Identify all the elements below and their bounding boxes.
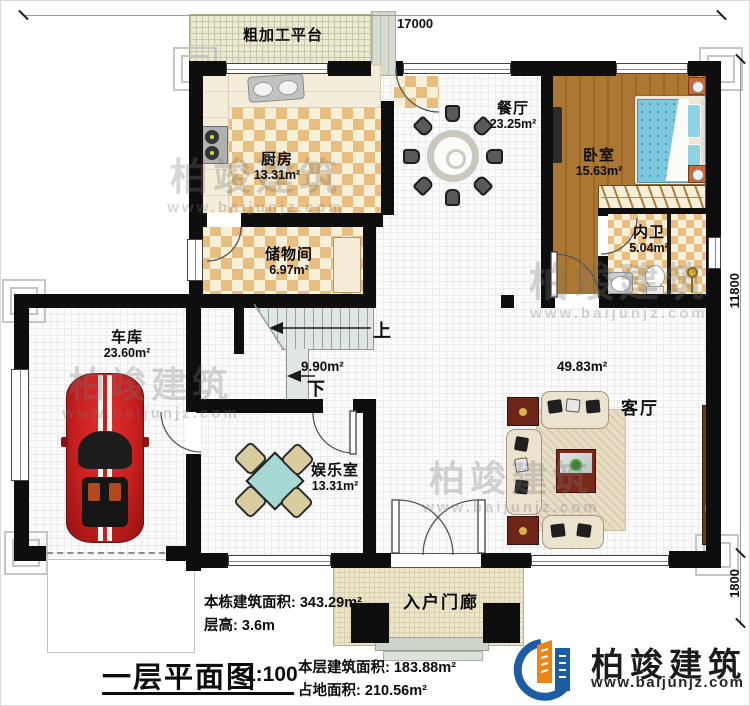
garage-label: 车库 23.60m² xyxy=(87,329,167,361)
living-area-label: 49.83m² xyxy=(557,359,607,375)
info-value: 183.88m² xyxy=(394,660,456,676)
room-area: 15.63m² xyxy=(559,164,639,178)
info-label: 占地面积: xyxy=(298,683,361,699)
room-name: 厨房 xyxy=(237,151,317,168)
info-label: 本栋建筑面积: xyxy=(204,595,296,611)
dimension-line-top xyxy=(23,15,723,16)
stair-up-label: 上 xyxy=(373,317,391,343)
room-area: 13.31m² xyxy=(293,479,377,493)
plan-title: 一层平面图 xyxy=(102,654,257,696)
room-name: 卧室 xyxy=(559,147,639,164)
stair-area-label: 9.90m² xyxy=(301,359,344,375)
brand-url: www.baijunjz.com xyxy=(591,674,744,691)
dim-top-label: 17000 xyxy=(397,16,433,31)
dim-right-label: 11800 xyxy=(727,273,742,308)
room-name: 车库 xyxy=(87,329,167,346)
room-area: 13.31m² xyxy=(237,168,317,182)
total-area-line: 本栋建筑面积: 343.29m² xyxy=(204,591,362,612)
room-name: 储物间 xyxy=(249,246,329,263)
living-label: 客厅 xyxy=(621,394,659,419)
platform-name: 粗加工平台 xyxy=(223,27,343,44)
info-value: 3.6m xyxy=(242,618,275,634)
footprint-line: 占地面积: 210.56m² xyxy=(298,679,427,700)
bedroom-label: 卧室 15.63m² xyxy=(559,147,639,179)
room-area: 5.04m² xyxy=(609,241,689,255)
room-name: 娱乐室 xyxy=(293,462,377,479)
info-label: 层高: xyxy=(204,618,238,634)
info-value: 343.29m² xyxy=(300,595,362,611)
title-underline xyxy=(102,692,294,695)
room-area: 6.97m² xyxy=(249,263,329,277)
room-area: 23.60m² xyxy=(87,346,167,360)
porch-label: 入户门廊 xyxy=(403,588,479,613)
storage-label: 储物间 6.97m² xyxy=(249,246,329,278)
floor-area-line: 本层建筑面积: 183.88m² xyxy=(298,656,456,677)
info-value: 210.56m² xyxy=(365,683,427,699)
kitchen-label: 厨房 13.31m² xyxy=(237,151,317,183)
room-name: 内卫 xyxy=(609,224,689,241)
info-label: 本层建筑面积: xyxy=(298,660,390,676)
dim-right-lower-label: 1800 xyxy=(727,569,742,598)
bathroom-label: 内卫 5.04m² xyxy=(609,224,689,256)
room-area: 23.25m² xyxy=(473,117,553,131)
floor-height-line: 层高: 3.6m xyxy=(204,614,275,635)
brand-logo-icon xyxy=(507,631,587,703)
stair-down-label: 下 xyxy=(307,375,325,401)
plan-scale: 1:100 xyxy=(244,663,298,687)
dining-label: 餐厅 23.25m² xyxy=(473,100,553,132)
floor-plan: 粗加工平台 入户门廊 上 下 9.90m² xyxy=(0,0,750,706)
platform-label: 粗加工平台 xyxy=(223,27,343,44)
room-name: 餐厅 xyxy=(473,100,553,117)
entertainment-label: 娱乐室 13.31m² xyxy=(293,462,377,494)
